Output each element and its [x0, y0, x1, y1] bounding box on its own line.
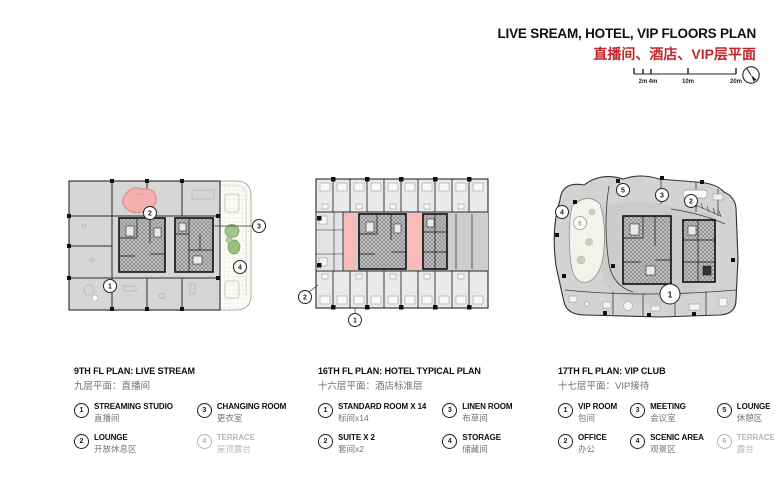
svg-text:2: 2 — [303, 295, 307, 302]
legend-number-badge: 6 — [717, 434, 732, 449]
legend-label-en: LOUNGE — [737, 402, 771, 411]
sheet-header: LIVE SREAM, HOTEL, VIP FLOORS PLAN 直播间、酒… — [498, 26, 756, 64]
plan-marker: 4 — [556, 206, 569, 219]
svg-text:2: 2 — [148, 211, 152, 218]
legend-number-badge: 2 — [74, 434, 89, 449]
core-block — [683, 220, 715, 282]
floor-plan-17f: 1 2 3 4 5 6 — [543, 164, 745, 342]
legend-number-badge: 4 — [630, 434, 645, 449]
svg-text:3: 3 — [257, 224, 261, 231]
scale-label-10m: 10m — [682, 79, 694, 85]
core-block — [175, 218, 213, 272]
legend-label-en: VIP ROOM — [578, 402, 617, 411]
plan-marker: 2 — [144, 207, 157, 220]
legend-label-en: LOUNGE — [94, 433, 137, 442]
legend-item: 4 TERRACE 屋顶露台 — [197, 433, 286, 455]
legend-item: 2 SUITE X 2 套间x2 — [318, 433, 426, 455]
svg-text:1: 1 — [108, 284, 112, 291]
legend-label-en: STORAGE — [462, 433, 501, 442]
svg-text:3: 3 — [660, 193, 664, 200]
legend-item: 4 SCENIC AREA 观景区 — [630, 433, 704, 455]
legend-number-badge: 3 — [630, 403, 645, 418]
legend-item: 4 STORAGE 储藏间 — [442, 433, 512, 455]
legend-number-badge: 1 — [74, 403, 89, 418]
left-suite-block — [316, 212, 343, 271]
plan-marker: 3 — [253, 220, 266, 233]
legend-label-cn: 开放休息区 — [94, 443, 137, 455]
scale-label-20m: 20m — [730, 79, 742, 85]
plan-marker: 5 — [617, 184, 630, 197]
legend-item: 5 LOUNGE 休憩区 — [717, 402, 775, 424]
plan-marker: 1 — [349, 314, 362, 327]
legend-number-badge: 2 — [318, 434, 333, 449]
legend-number-badge: 4 — [197, 434, 212, 449]
plan-marker: 4 — [234, 261, 247, 274]
legend-item: 1 STREAMING STUDIO 直播间 — [74, 402, 173, 424]
legend-item: 3 LINEN ROOM 布草间 — [442, 402, 512, 424]
legend-title-cn: 九层平面：直播间 — [74, 378, 286, 392]
legend-label-cn: 会议室 — [650, 412, 686, 424]
legend-label-cn: 直播间 — [94, 412, 173, 424]
legend-label-en: CHANGING ROOM — [217, 402, 286, 411]
legend-label-en: OFFICE — [578, 433, 607, 442]
plan-marker: 2 — [685, 195, 698, 208]
plan-marker: 3 — [656, 189, 669, 202]
legend-label-en: TERRACE — [737, 433, 775, 442]
legend-number-badge: 5 — [717, 403, 732, 418]
legend-label-cn: 休憩区 — [737, 412, 771, 424]
floor-plan-9f: 1 2 3 4 — [62, 168, 284, 336]
legend-label-cn: 观景区 — [650, 443, 704, 455]
legend-17f: 17TH FL PLAN: VIP CLUB 十七层平面：VIP接待 1 VIP… — [558, 366, 780, 455]
legend-title-en: 17TH FL PLAN: VIP CLUB — [558, 366, 780, 376]
legend-label-en: SUITE X 2 — [338, 433, 375, 442]
legend-item: 3 MEETING 会议室 — [630, 402, 704, 424]
legend-item: 6 TERRACE 露台 — [717, 433, 775, 455]
legend-label-en: TERRACE — [217, 433, 255, 442]
legend-label-en: MEETING — [650, 402, 686, 411]
legend-16f: 16TH FL PLAN: HOTEL TYPICAL PLAN 十六层平面：酒… — [318, 366, 536, 455]
legend-label-cn: 储藏间 — [462, 443, 501, 455]
plan-marker: 1 — [104, 280, 117, 293]
svg-text:1: 1 — [353, 318, 357, 325]
sheet-canvas: LIVE SREAM, HOTEL, VIP FLOORS PLAN 直播间、酒… — [0, 0, 780, 488]
plan-marker: 2 — [299, 291, 312, 304]
core-block — [359, 214, 406, 269]
legend-label-cn: 布草间 — [462, 412, 512, 424]
legend-item: 2 OFFICE 办公 — [558, 433, 617, 455]
legend-title-cn: 十六层平面：酒店标准层 — [318, 378, 536, 392]
legend-9f: 9TH FL PLAN: LIVE STREAM 九层平面：直播间 1 STRE… — [74, 366, 286, 455]
legend-title-en: 9TH FL PLAN: LIVE STREAM — [74, 366, 286, 376]
suite-highlight — [408, 214, 423, 269]
legend-label-cn: 露台 — [737, 443, 775, 455]
sheet-subtitle-cn: 直播间、酒店、VIP层平面 — [498, 44, 756, 64]
legend-number-badge: 3 — [197, 403, 212, 418]
scale-label-2m: 2m — [639, 79, 648, 85]
legend-label-cn: 标间x14 — [338, 412, 426, 424]
legend-label-en: STREAMING STUDIO — [94, 402, 173, 411]
suite-highlight — [344, 214, 356, 269]
legend-label-en: SCENIC AREA — [650, 433, 704, 442]
core-block — [423, 214, 447, 269]
legend-label-en: LINEN ROOM — [462, 402, 512, 411]
plan-marker-muted: 6 — [574, 217, 587, 230]
legend-label-cn: 更衣室 — [217, 412, 286, 424]
svg-text:1: 1 — [668, 290, 673, 300]
scale-bar: 2m 4m 10m 20m — [632, 64, 764, 92]
svg-text:4: 4 — [238, 265, 242, 272]
legend-number-badge: 3 — [442, 403, 457, 418]
legend-label-en: STANDARD ROOM X 14 — [338, 402, 426, 411]
core-block — [119, 218, 165, 272]
legend-number-badge: 1 — [558, 403, 573, 418]
sheet-title: LIVE SREAM, HOTEL, VIP FLOORS PLAN — [498, 26, 756, 41]
scale-label-4m: 4m — [649, 79, 658, 85]
legend-number-badge: 1 — [318, 403, 333, 418]
legend-number-badge: 4 — [442, 434, 457, 449]
legend-label-cn: 包间 — [578, 412, 617, 424]
plan-marker: 1 — [660, 284, 680, 304]
legend-title-en: 16TH FL PLAN: HOTEL TYPICAL PLAN — [318, 366, 536, 376]
legend-item: 3 CHANGING ROOM 更衣室 — [197, 402, 286, 424]
legend-item: 2 LOUNGE 开放休息区 — [74, 433, 173, 455]
north-arrow-icon — [743, 67, 759, 83]
legend-label-cn: 套间x2 — [338, 443, 375, 455]
svg-text:4: 4 — [560, 210, 564, 217]
legend-title-cn: 十七层平面：VIP接待 — [558, 378, 780, 392]
legend-label-cn: 办公 — [578, 443, 607, 455]
legend-number-badge: 2 — [558, 434, 573, 449]
svg-text:6: 6 — [578, 221, 582, 228]
legend-item: 1 VIP ROOM 包间 — [558, 402, 617, 424]
floor-plan-16f: 2 1 — [296, 164, 511, 334]
legend-item: 1 STANDARD ROOM X 14 标间x14 — [318, 402, 426, 424]
svg-text:2: 2 — [689, 199, 693, 206]
svg-text:5: 5 — [621, 188, 625, 195]
legend-label-cn: 屋顶露台 — [217, 443, 255, 455]
core-block — [623, 216, 671, 284]
